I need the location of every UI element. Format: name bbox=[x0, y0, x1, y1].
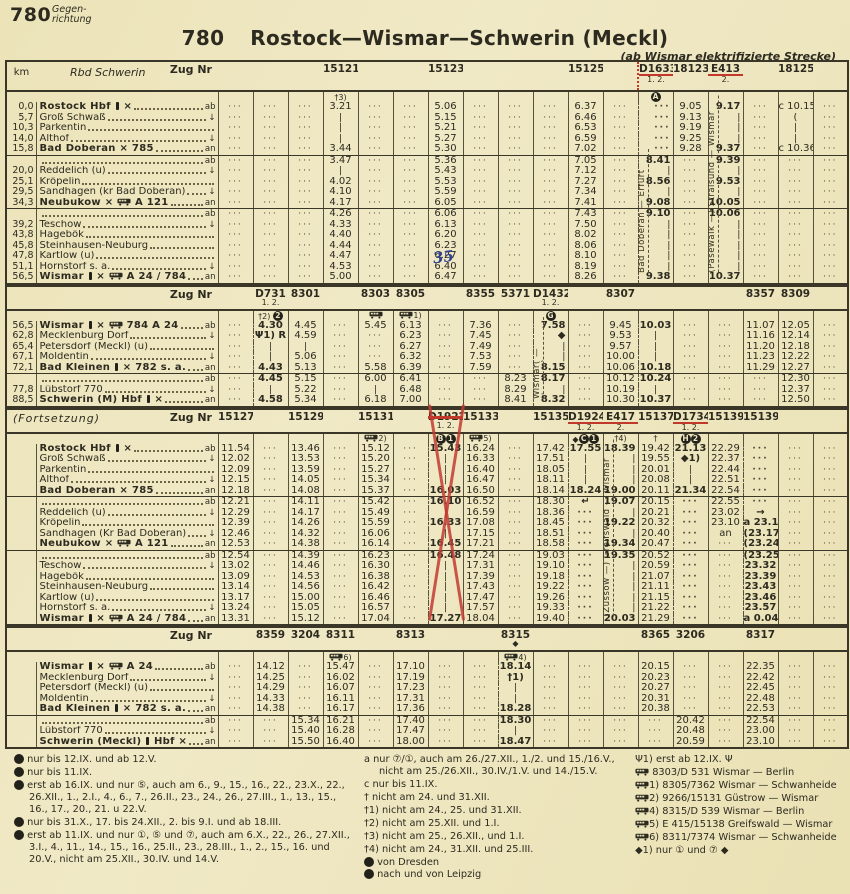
time-cell: 16.24 bbox=[463, 444, 498, 455]
time-cell: ··· bbox=[253, 220, 288, 231]
time-cell: ··· bbox=[498, 177, 533, 188]
mark-cell bbox=[498, 91, 533, 102]
time-cell: ··· bbox=[358, 134, 393, 145]
time-cell: 20.32 bbox=[638, 518, 673, 529]
time-cell: | bbox=[288, 342, 323, 353]
station-flag-icon bbox=[146, 737, 149, 745]
time-cell: ··· bbox=[568, 673, 603, 684]
time-cell: ··· bbox=[673, 694, 708, 705]
leader-dots bbox=[130, 679, 206, 681]
station-cell: Neubukow × A 121an bbox=[36, 539, 218, 550]
time-cell: ··· bbox=[603, 134, 638, 145]
time-cell: ··· bbox=[463, 209, 498, 220]
time-cell: ··· bbox=[778, 241, 813, 252]
train-number: 15137 bbox=[638, 409, 673, 433]
station-row: Hagebök13.09···14.53···16.38···|17.39···… bbox=[6, 572, 848, 583]
time-cell: ··· bbox=[813, 113, 848, 124]
train-number: 18125 bbox=[778, 61, 813, 91]
time-cell: a 0.04 bbox=[743, 614, 778, 626]
time-cell: ··· bbox=[708, 561, 743, 572]
train-number bbox=[568, 627, 603, 651]
time-cell: ··· bbox=[778, 508, 813, 519]
leader-dots bbox=[42, 557, 203, 559]
time-cell: 10.18 bbox=[638, 363, 673, 374]
mark-cell bbox=[743, 651, 778, 662]
time-cell: | bbox=[428, 508, 463, 519]
footnote-item: A nur bis 12.IX. und ab 12.V. bbox=[14, 754, 354, 766]
train-number bbox=[358, 61, 393, 91]
mark-cell bbox=[323, 310, 358, 321]
km-cell: 56,5 bbox=[6, 272, 36, 284]
time-cell: ··· bbox=[463, 134, 498, 145]
time-cell: ··· bbox=[813, 704, 848, 715]
train-number bbox=[708, 627, 743, 651]
train-number bbox=[533, 61, 568, 91]
mark-cell bbox=[358, 91, 393, 102]
km-cell bbox=[6, 704, 36, 715]
time-cell: ··· bbox=[218, 134, 253, 145]
station-cell: Rostock Hbf ×ab bbox=[36, 102, 218, 113]
time-cell: 4.43 bbox=[253, 363, 288, 374]
arrival-departure-tag: ↓ bbox=[208, 726, 217, 736]
time-cell: ··· bbox=[323, 539, 358, 550]
leader-dots bbox=[112, 609, 206, 611]
station-row: ab·········3.47······5.36·········7.05··… bbox=[6, 155, 848, 166]
mark-cell bbox=[358, 310, 393, 321]
time-cell: ··· bbox=[393, 102, 428, 113]
time-cell: 12.18 bbox=[218, 486, 253, 497]
leader-dots bbox=[42, 722, 203, 724]
time-cell: 16.40 bbox=[323, 737, 358, 749]
mark-cell bbox=[778, 91, 813, 102]
mark-cell bbox=[288, 310, 323, 321]
time-cell: ··· bbox=[603, 726, 638, 737]
time-cell: 6.13 bbox=[428, 220, 463, 231]
mark-cell bbox=[673, 310, 708, 321]
time-cell: 23.00 bbox=[743, 726, 778, 737]
time-cell: ··· bbox=[393, 123, 428, 134]
time-cell: 12.30 bbox=[778, 374, 813, 385]
route-vertical-label: Bad Doberan — Erfurt bbox=[638, 149, 649, 273]
time-cell: | bbox=[673, 465, 708, 476]
circled-mark: 2 bbox=[364, 869, 374, 879]
time-cell: ··· bbox=[463, 704, 498, 715]
time-cell: ··· bbox=[813, 241, 848, 252]
mark-cell bbox=[708, 310, 743, 321]
km-cell bbox=[6, 529, 36, 540]
mark-cell bbox=[533, 433, 568, 444]
time-cell: 3.47 bbox=[323, 155, 358, 166]
time-cell: ··· bbox=[218, 144, 253, 155]
train-number bbox=[463, 61, 498, 91]
time-cell: ··· bbox=[638, 102, 673, 113]
time-cell: ··· bbox=[428, 363, 463, 374]
station-cell: ab bbox=[36, 497, 218, 508]
bus-icon bbox=[469, 434, 483, 442]
time-cell: 6.41 bbox=[393, 374, 428, 385]
time-cell: ··· bbox=[393, 209, 428, 220]
time-cell: ··· bbox=[358, 662, 393, 673]
train-number-row: Zug NrD7311. 2.83018303830583555371D1432… bbox=[6, 286, 848, 310]
time-cell: ··· bbox=[463, 123, 498, 134]
arrival-departure-tag: ab bbox=[205, 102, 218, 112]
time-cell: 13.24 bbox=[218, 603, 253, 614]
time-cell: 12.14 bbox=[778, 331, 813, 342]
station-cell: Groß Schwaß↓ bbox=[36, 454, 218, 465]
time-cell: ··· bbox=[708, 539, 743, 550]
time-cell: ··· bbox=[813, 561, 848, 572]
arrival-departure-tag: an bbox=[205, 272, 218, 282]
direction-note: Gegen- richtung bbox=[52, 5, 92, 25]
time-cell: ··· bbox=[498, 454, 533, 465]
time-cell: ··· bbox=[813, 177, 848, 188]
time-cell: 13.09 bbox=[218, 572, 253, 583]
station-cell: Sandhagen (kr Bad Doberan)↓ bbox=[36, 187, 218, 198]
mark-cell bbox=[708, 433, 743, 444]
station-name: Parkentin bbox=[37, 123, 87, 133]
station-name: Groß Schwaß bbox=[37, 454, 106, 464]
time-cell: ··· bbox=[568, 694, 603, 705]
km-cell: 34,3 bbox=[6, 198, 36, 209]
time-cell: ··· bbox=[778, 454, 813, 465]
time-cell: ··· bbox=[708, 603, 743, 614]
bus-icon bbox=[109, 321, 123, 329]
footnote-item: 5) E 415/15138 Greifswald — Wismar bbox=[635, 819, 842, 831]
time-cell: ··· bbox=[673, 614, 708, 626]
time-cell: ··· bbox=[393, 444, 428, 455]
time-cell: ··· bbox=[218, 262, 253, 273]
time-cell: ··· bbox=[813, 209, 848, 220]
time-cell: 14.39 bbox=[288, 550, 323, 561]
km-cell bbox=[6, 539, 36, 550]
time-cell: 12.39 bbox=[218, 518, 253, 529]
station-row: Parkentin12.09···13.59···15.27···|16.40·… bbox=[6, 465, 848, 476]
time-cell: 17.19 bbox=[393, 673, 428, 684]
train-number bbox=[813, 286, 848, 310]
time-cell: 16.10 bbox=[428, 497, 463, 508]
time-cell: 13.14 bbox=[218, 582, 253, 593]
mark-cell bbox=[708, 651, 743, 662]
station-name: Neubukow × A 121 bbox=[37, 539, 169, 549]
time-cell: ··· bbox=[603, 694, 638, 705]
time-cell: 9.19 bbox=[673, 123, 708, 134]
time-cell: ··· bbox=[568, 593, 603, 604]
time-cell: ··· bbox=[393, 155, 428, 166]
time-cell: ··· bbox=[813, 683, 848, 694]
time-cell: ··· bbox=[603, 123, 638, 134]
time-cell: ··· bbox=[568, 539, 603, 550]
time-cell: ··· bbox=[253, 518, 288, 529]
arrival-departure-tag: ↓ bbox=[208, 603, 217, 613]
time-cell: | bbox=[428, 603, 463, 614]
mark-cell bbox=[568, 310, 603, 321]
time-cell: 7.12 bbox=[568, 166, 603, 177]
timetable-section-1: kmRbd SchwerinZug Nr151211512315125D1633… bbox=[5, 60, 850, 285]
leader-dots bbox=[181, 327, 203, 329]
station-name: Hagebök bbox=[37, 230, 84, 240]
time-cell: 20.40 bbox=[638, 529, 673, 540]
footnote-item: ◆1) nur ① und ⑦ ◆ bbox=[635, 845, 842, 857]
station-name: Steinhausen-Neuburg bbox=[37, 241, 149, 251]
time-cell: ··· bbox=[358, 144, 393, 155]
time-cell: 9.28 bbox=[673, 144, 708, 155]
time-cell: 16.02 bbox=[323, 673, 358, 684]
time-cell: ··· bbox=[813, 272, 848, 284]
train-number-row: Zug Nr83593204831183138315◆836532068317 bbox=[6, 627, 848, 651]
time-cell: 8.41 bbox=[498, 395, 533, 407]
mark-cell bbox=[673, 651, 708, 662]
time-cell: ··· bbox=[323, 561, 358, 572]
time-cell: ··· bbox=[813, 352, 848, 363]
time-cell: ··· bbox=[638, 726, 673, 737]
zug-nr-header: Zug Nr bbox=[6, 286, 218, 310]
time-cell: 8.23 bbox=[498, 374, 533, 385]
leader-dots bbox=[150, 348, 214, 350]
train-number: E4132. bbox=[708, 61, 743, 91]
time-cell: 22.53 bbox=[743, 704, 778, 715]
time-cell: ··· bbox=[568, 572, 603, 583]
time-cell: 20.31 bbox=[638, 694, 673, 705]
time-cell: 18.24 bbox=[568, 486, 603, 497]
station-row: Groß Schwaß↓12.02···13.53···15.20···|16.… bbox=[6, 454, 848, 465]
time-cell: ··· bbox=[673, 230, 708, 241]
leader-dots bbox=[83, 226, 206, 228]
leader-dots bbox=[150, 588, 213, 590]
station-cell: ab bbox=[36, 550, 218, 561]
time-cell: ··· bbox=[288, 113, 323, 124]
time-cell: ··· bbox=[533, 272, 568, 284]
leader-dots bbox=[105, 732, 207, 734]
time-cell: ··· bbox=[673, 673, 708, 684]
station-row: ab12.54···14.39···16.23···16.4817.24···1… bbox=[6, 550, 848, 561]
bus-icon bbox=[364, 434, 378, 442]
arrival-departure-tag: ↓ bbox=[208, 508, 217, 518]
km-cell: 51,1 bbox=[6, 262, 36, 273]
time-cell: ··· bbox=[463, 113, 498, 124]
time-cell: 6.37 bbox=[568, 102, 603, 113]
time-cell: | bbox=[323, 166, 358, 177]
mark-cell bbox=[813, 91, 848, 102]
time-cell: 13.31 bbox=[218, 614, 253, 626]
time-cell: ··· bbox=[778, 539, 813, 550]
time-cell: 15.12 bbox=[358, 444, 393, 455]
footnote-item: G nur bis 31.X., 17. bis 24.XII., 2. bis… bbox=[14, 817, 354, 829]
bus-icon bbox=[109, 614, 123, 622]
mark-cell bbox=[743, 433, 778, 444]
train-number: 15127 bbox=[218, 409, 253, 433]
time-cell: | bbox=[498, 683, 533, 694]
time-cell: ··· bbox=[778, 673, 813, 684]
station-name: Rostock Hbf × bbox=[37, 102, 133, 112]
station-cell: Kröpelin bbox=[36, 177, 218, 188]
time-cell: ··· bbox=[358, 251, 393, 262]
time-cell: ··· bbox=[323, 374, 358, 385]
arrival-departure-tag: ↓ bbox=[208, 561, 217, 571]
time-cell: ··· bbox=[673, 251, 708, 262]
time-cell: ··· bbox=[498, 539, 533, 550]
time-cell: 10.37 bbox=[638, 395, 673, 407]
arrival-departure-tag: ab bbox=[205, 209, 218, 219]
arrival-departure-tag: an bbox=[205, 614, 218, 624]
train-number bbox=[813, 409, 848, 433]
time-cell: 4.45 bbox=[253, 374, 288, 385]
time-cell: 9.45 bbox=[603, 321, 638, 332]
mark-cell bbox=[813, 310, 848, 321]
time-cell: ··· bbox=[743, 395, 778, 407]
time-cell: 19.40 bbox=[533, 614, 568, 626]
arrival-departure-tag: an bbox=[205, 486, 218, 496]
train-number bbox=[323, 286, 358, 310]
arrival-departure-tag: ↓ bbox=[208, 331, 217, 341]
time-cell: ··· bbox=[568, 550, 603, 561]
station-name: Schwerin (M) Hbf × bbox=[37, 395, 164, 405]
time-cell: 22.37 bbox=[708, 454, 743, 465]
time-cell: ··· bbox=[778, 694, 813, 705]
station-name: Rostock Hbf × bbox=[37, 444, 133, 454]
time-cell: ··· bbox=[323, 497, 358, 508]
time-cell: ··· bbox=[358, 220, 393, 231]
mark-cell bbox=[393, 91, 428, 102]
time-cell: 17.10 bbox=[393, 662, 428, 673]
time-cell: 12.46 bbox=[218, 529, 253, 540]
time-cell: ··· bbox=[568, 352, 603, 363]
time-cell: ··· bbox=[393, 497, 428, 508]
station-row: Schwerin (Meckl) Hbf ×an······15.5016.40… bbox=[6, 737, 848, 749]
train-number bbox=[218, 627, 253, 651]
time-cell: 21.22 bbox=[638, 603, 673, 614]
time-cell: ··· bbox=[533, 134, 568, 145]
time-cell: 17.47 bbox=[393, 726, 428, 737]
leader-dots bbox=[130, 337, 206, 339]
time-cell: ··· bbox=[498, 614, 533, 626]
time-cell: 17.08 bbox=[463, 518, 498, 529]
time-cell: ··· bbox=[323, 342, 358, 353]
time-cell: ··· bbox=[498, 220, 533, 231]
time-cell: ··· bbox=[673, 572, 708, 583]
km-cell: 10,3 bbox=[6, 123, 36, 134]
time-cell: 4.26 bbox=[323, 209, 358, 220]
time-cell: ··· bbox=[463, 251, 498, 262]
time-cell: ··· bbox=[533, 220, 568, 231]
train-number: 15135 bbox=[533, 409, 568, 433]
time-cell: ··· bbox=[463, 220, 498, 231]
route-vertical-label: (Pasewalk —) Stralsund — Wismar bbox=[708, 96, 719, 273]
station-cell: Schwerin (M) Hbf ×an bbox=[36, 395, 218, 407]
time-cell: ··· bbox=[498, 593, 533, 604]
station-row: 77,8Lübstorf 770↓···|5.22···|6.48······8… bbox=[6, 385, 848, 396]
footnote-item: a nur ⑦/①, auch am 26./27.XII., 1./2. un… bbox=[364, 754, 625, 778]
time-cell: 16.48 bbox=[428, 550, 463, 561]
station-row: 47,8Kartlow (u)·········4.47······6.27··… bbox=[6, 251, 848, 262]
time-cell: ··· bbox=[428, 662, 463, 673]
bus-icon bbox=[329, 653, 343, 661]
footnote-item: H erst ab 11.IX. und nur ①, ⑤ und ⑦, auc… bbox=[14, 830, 354, 866]
bus-icon bbox=[635, 807, 649, 815]
time-cell: ··· bbox=[358, 352, 393, 363]
timetable-section-2: Zug NrD7311. 2.83018303830583555371D1432… bbox=[5, 285, 850, 408]
train-number bbox=[463, 627, 498, 651]
time-cell: ··· bbox=[428, 726, 463, 737]
train-number bbox=[288, 61, 323, 91]
train-number bbox=[393, 409, 428, 433]
time-cell: 5.27 bbox=[428, 134, 463, 145]
station-cell: Reddelich (u)↓ bbox=[36, 166, 218, 177]
time-cell: ··· bbox=[533, 166, 568, 177]
time-cell: 23.02 bbox=[708, 508, 743, 519]
time-cell: 17.39 bbox=[463, 572, 498, 583]
time-cell: 5.58 bbox=[358, 363, 393, 374]
time-cell: 4.47 bbox=[323, 251, 358, 262]
time-cell: ··· bbox=[673, 374, 708, 385]
station-cell: Hornstorf s. a.↓ bbox=[36, 603, 218, 614]
time-cell: 17.51 bbox=[533, 454, 568, 465]
time-cell: ··· bbox=[358, 262, 393, 273]
time-cell: ··· bbox=[253, 550, 288, 561]
time-cell: 6.20 bbox=[428, 230, 463, 241]
time-cell: ··· bbox=[323, 475, 358, 486]
km-cell bbox=[6, 694, 36, 705]
time-cell: 15.49 bbox=[358, 508, 393, 519]
km-cell: 14,0 bbox=[6, 134, 36, 145]
time-cell: 12.09 bbox=[218, 465, 253, 476]
mark-cell bbox=[393, 433, 428, 444]
leader-dots bbox=[91, 700, 206, 702]
footnote-item: †3) nicht am 25., 26.XII., und 1.I. bbox=[364, 831, 625, 843]
time-cell: 16.33 bbox=[463, 454, 498, 465]
time-cell: 16.52 bbox=[463, 497, 498, 508]
time-cell: ··· bbox=[813, 508, 848, 519]
mark-cell bbox=[533, 651, 568, 662]
time-cell: 17.57 bbox=[463, 603, 498, 614]
mark-cell bbox=[218, 651, 253, 662]
time-cell: ··· bbox=[673, 550, 708, 561]
mark-cell bbox=[568, 651, 603, 662]
time-cell: 22.51 bbox=[708, 475, 743, 486]
time-cell: ··· bbox=[498, 272, 533, 284]
page-number: 780 bbox=[10, 4, 51, 26]
time-cell: ··· bbox=[708, 550, 743, 561]
leader-dots bbox=[96, 599, 213, 601]
time-cell: 22.55 bbox=[708, 497, 743, 508]
circled-mark: G bbox=[546, 311, 556, 321]
station-row: 62,8Mecklenburg Dorf↓···Ψ1) R4.59······6… bbox=[6, 331, 848, 342]
time-cell: ··· bbox=[218, 331, 253, 342]
km-cell bbox=[6, 561, 36, 572]
time-cell: 17.21 bbox=[463, 539, 498, 550]
time-cell: | bbox=[358, 385, 393, 396]
bus-icon bbox=[109, 662, 123, 670]
time-cell: 7.49 bbox=[463, 342, 498, 353]
time-cell: 6.00 bbox=[358, 374, 393, 385]
leader-dots bbox=[42, 215, 203, 217]
arrival-departure-tag: ↓ bbox=[208, 529, 217, 539]
time-cell: ··· bbox=[218, 177, 253, 188]
time-cell: 5.15 bbox=[288, 374, 323, 385]
station-name: Sandhagen (kr Bad Doberan) bbox=[37, 187, 186, 197]
time-cell: ··· bbox=[288, 166, 323, 177]
time-cell: ··· bbox=[708, 342, 743, 353]
time-cell: 16.23 bbox=[358, 550, 393, 561]
time-cell: | bbox=[428, 475, 463, 486]
time-cell: ··· bbox=[393, 262, 428, 273]
station-name: Petersdorf (Meckl) (u) bbox=[37, 683, 148, 693]
time-cell: 18.45 bbox=[533, 518, 568, 529]
time-cell: ··· bbox=[533, 673, 568, 684]
time-cell: ··· bbox=[638, 737, 673, 749]
time-cell: 5.21 bbox=[428, 123, 463, 134]
time-cell: ··· bbox=[218, 737, 253, 749]
arrival-departure-tag: ab bbox=[205, 374, 218, 384]
